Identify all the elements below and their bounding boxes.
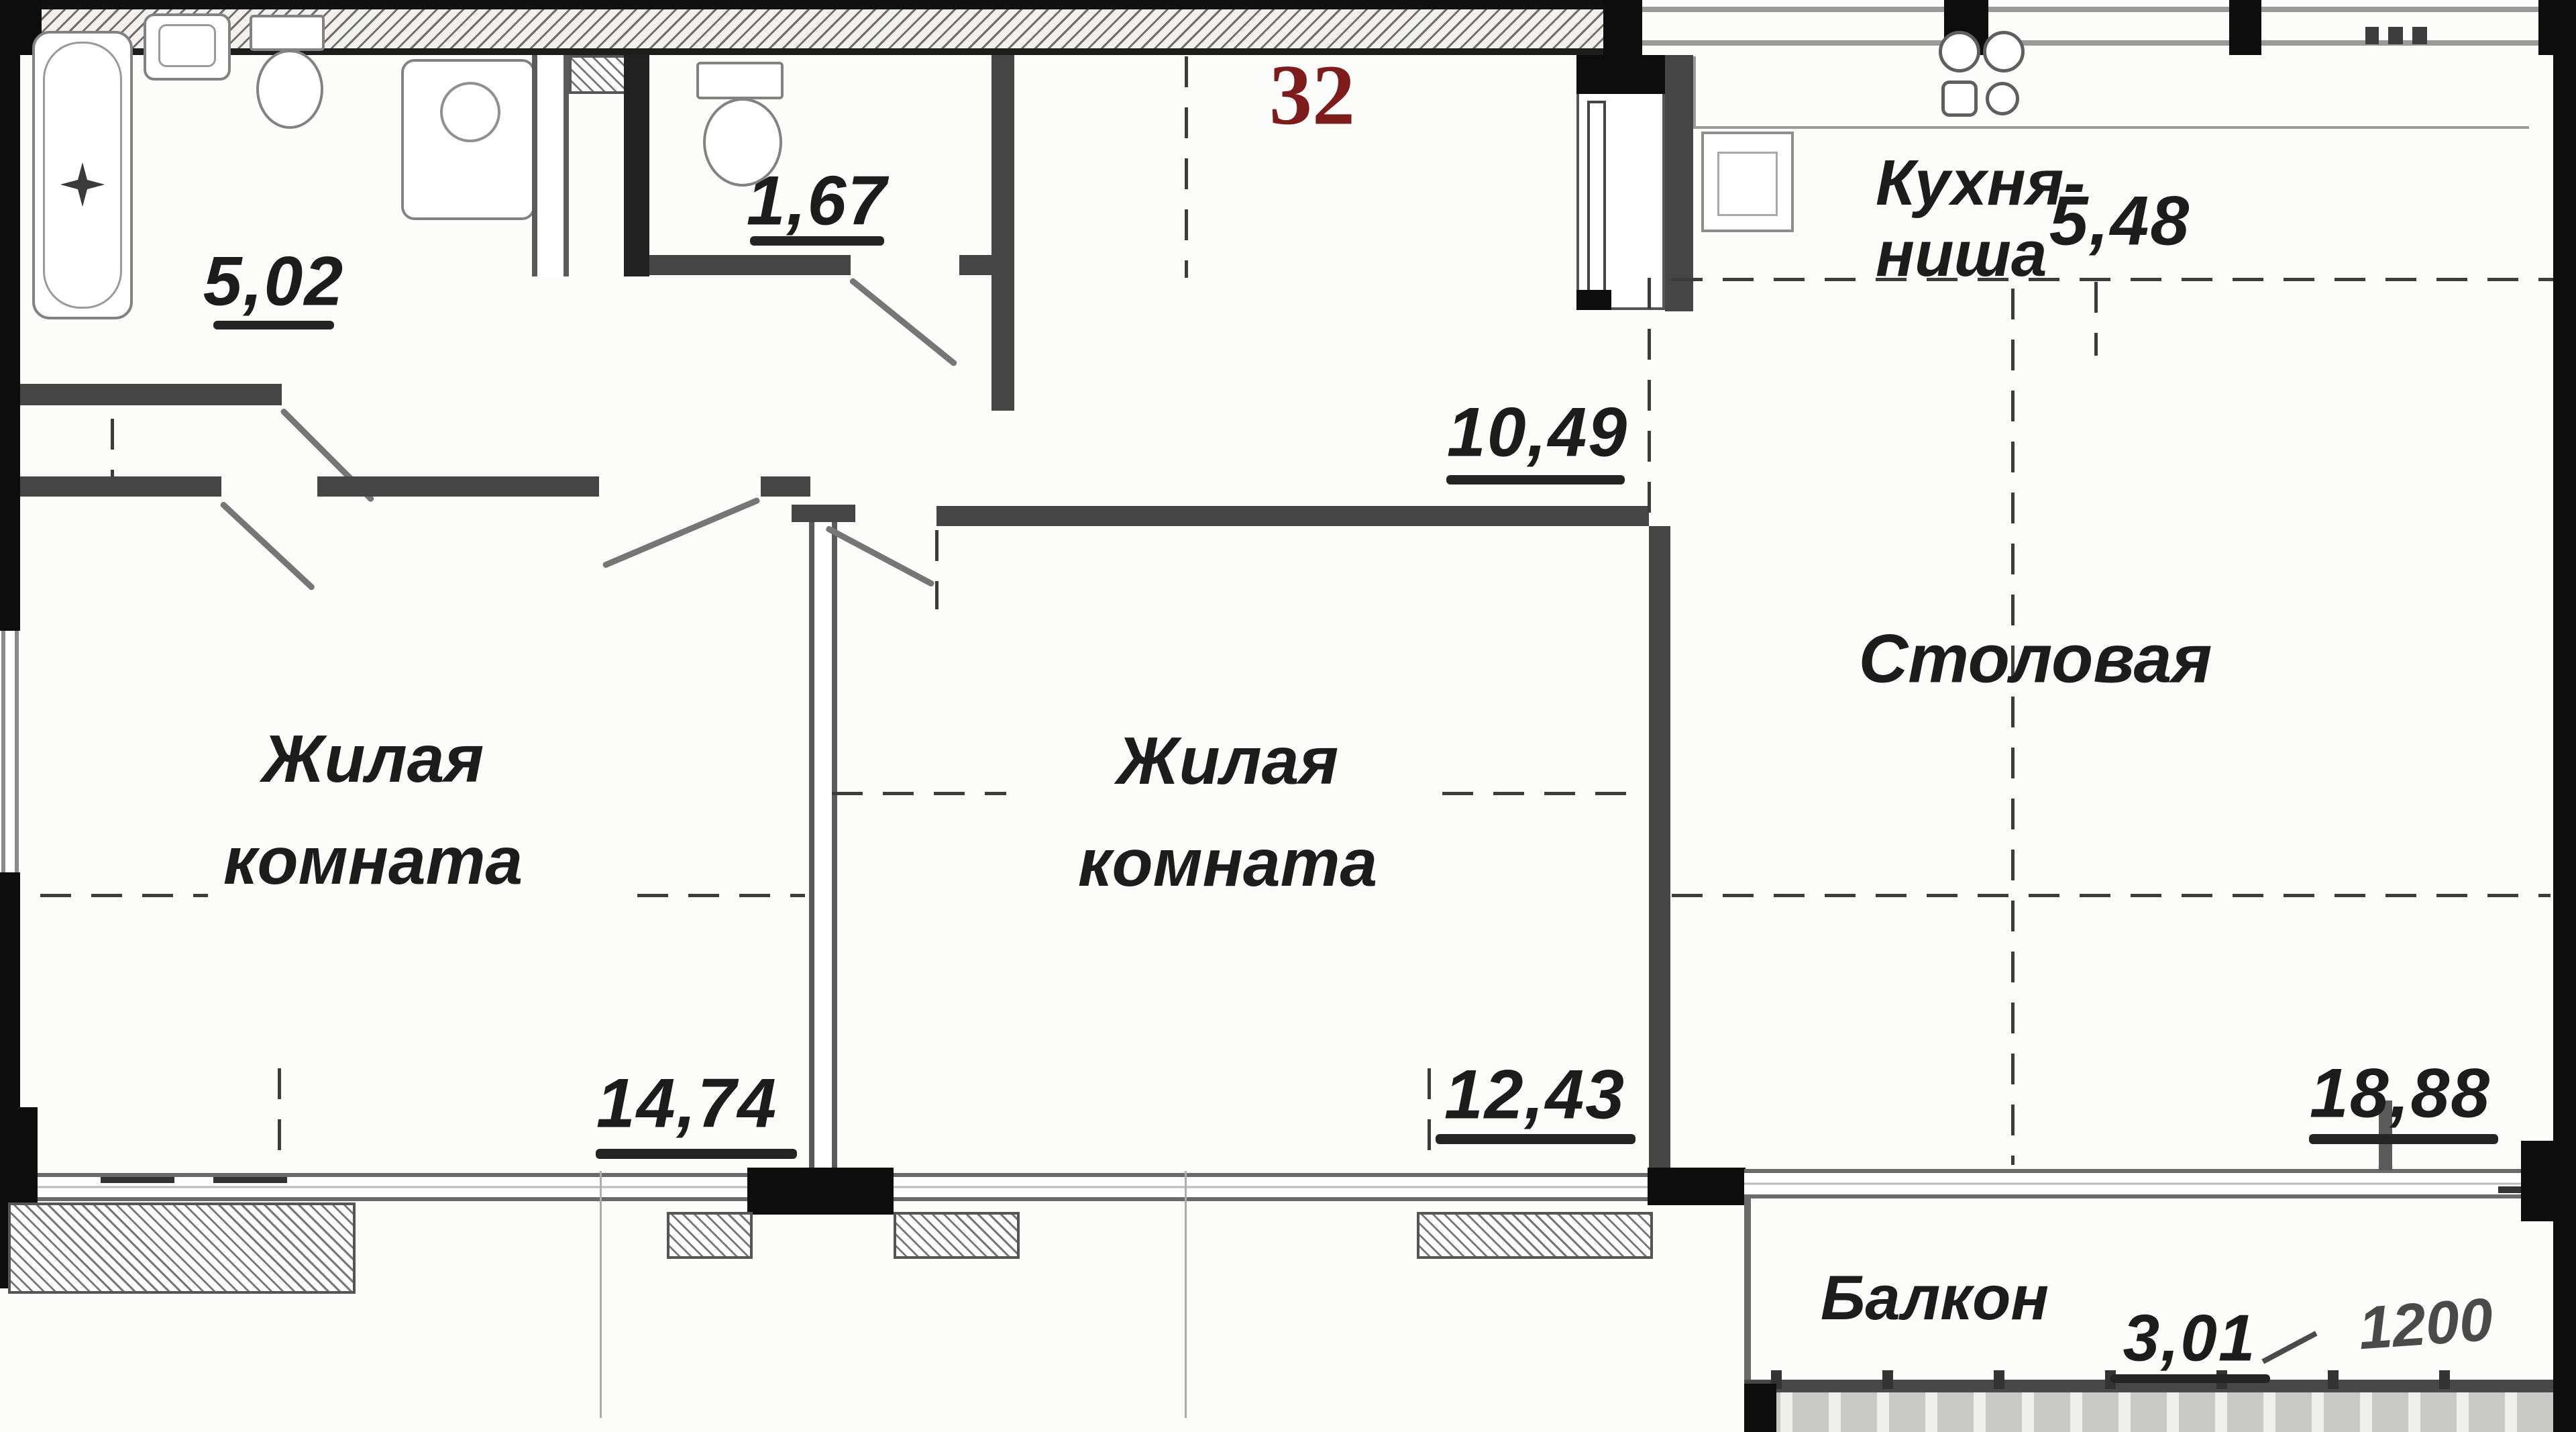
vent-shaft <box>569 55 627 94</box>
window-frame-mark <box>213 1177 287 1183</box>
stove-burners-icon <box>1935 16 2022 123</box>
living2-label-line2: комната <box>1078 812 1377 914</box>
vent-dots-icon <box>2365 25 2439 46</box>
top-wall-pier <box>1603 0 1642 55</box>
hall-zone-dash <box>1185 56 1188 278</box>
living1-top-wall <box>20 476 221 497</box>
toilet-bowl <box>256 50 323 129</box>
living2-zone-dash <box>1442 792 1644 795</box>
balcony-dim-slash <box>2261 1331 2317 1364</box>
living2-window-dash <box>1428 1068 1431 1169</box>
drain-star-icon <box>59 161 106 208</box>
bottom-pier <box>747 1168 894 1215</box>
toilet-icon <box>250 15 325 51</box>
shaft-wall <box>624 55 649 276</box>
balcony-corner-post <box>1744 1384 1776 1432</box>
apartment-number: 32 <box>1269 46 1355 145</box>
left-wall-upper <box>0 55 20 631</box>
dining-label: Столовая <box>1859 620 2212 699</box>
top-wall-pier <box>2229 0 2261 55</box>
balcony-left-wall <box>1744 1198 1751 1400</box>
door-zone-dash <box>935 530 938 609</box>
hall-area: 10,49 <box>1447 393 1628 473</box>
living2-right-wall <box>1649 526 1670 1169</box>
dining-zone-dash-h <box>1672 894 2551 897</box>
living2-top-wall <box>936 506 1649 526</box>
hall-dining-dash <box>1648 278 1651 525</box>
living2-area-underline <box>1436 1134 1635 1144</box>
window-sill-hatch <box>1417 1212 1653 1259</box>
wc-right-wall <box>991 55 1014 411</box>
sink-inner <box>158 24 216 67</box>
window-sill-hatch <box>8 1203 356 1294</box>
left-window <box>1 631 19 872</box>
kitchen-zone-dash-v <box>2094 282 2098 356</box>
counter-edge-left <box>1693 56 1696 129</box>
dining-zone-dash <box>2011 289 2015 1165</box>
living1-area-underline <box>596 1149 797 1159</box>
wc-door-jamb <box>959 255 991 275</box>
living2-label-line1: Жилая <box>1078 710 1377 812</box>
entrance-sill <box>1576 290 1611 310</box>
hall-area-underline <box>1446 475 1625 484</box>
window-sill-hatch <box>894 1212 1020 1259</box>
balcony-label: Балкон <box>1821 1262 2049 1334</box>
living2-door-leaf <box>825 525 935 588</box>
wc-door-leaf <box>849 277 958 367</box>
kitchen-area: 5,48 <box>2049 182 2190 262</box>
dining-area: 18,88 <box>2310 1054 2491 1134</box>
kitchen-zone-dash <box>1672 278 2553 281</box>
entrance-side-wall <box>1665 55 1693 311</box>
living-rooms-partition <box>809 522 837 1169</box>
window-sill-hatch <box>667 1212 753 1259</box>
living1-door-leaf <box>219 501 316 591</box>
window-frame-mark <box>101 1177 174 1183</box>
bathroom-area: 5,02 <box>203 242 344 322</box>
bathroom-area-underline <box>213 321 334 329</box>
living1-area: 14,74 <box>596 1064 777 1144</box>
balcony-rail-band <box>1744 1389 2553 1432</box>
entrance-door-leaf <box>1587 101 1606 301</box>
dining-window-strip <box>1744 1169 2553 1198</box>
balcony-corner-pier <box>2521 1141 2553 1221</box>
living1-zone-dash <box>637 894 805 897</box>
wc-toilet-tank <box>696 62 784 99</box>
living1-top-wall <box>761 476 810 497</box>
top-wall-hatched <box>0 0 1603 55</box>
entrance-header <box>1576 55 1665 94</box>
living1-window-dash <box>278 1068 281 1169</box>
floor-plan: 32 Кухня- ниша 5,48 1,67 5,02 10,49 Стол… <box>0 0 2576 1432</box>
extension-line <box>600 1171 602 1418</box>
dining-area-underline <box>2309 1134 2498 1144</box>
bathroom-right-wall <box>532 55 569 276</box>
wc-bottom-wall <box>649 255 851 275</box>
counter-edge <box>1693 126 2529 129</box>
living1-top-wall <box>317 476 599 497</box>
wc-area: 1,67 <box>747 162 888 242</box>
living1-label-line1: Жилая <box>223 708 523 810</box>
partition-cap <box>792 505 855 522</box>
bathroom-bottom-wall <box>20 384 282 405</box>
living2-label: Жилая комната <box>1078 710 1377 914</box>
washing-machine-door <box>440 82 500 142</box>
bottom-pier-right <box>1648 1168 1746 1205</box>
living1-label-line2: комната <box>223 810 523 912</box>
balcony-door-mark <box>2498 1186 2521 1193</box>
top-window-line <box>1603 7 2557 12</box>
balcony-area-underline <box>2110 1374 2270 1383</box>
right-wall <box>2553 0 2576 1432</box>
living1-label: Жилая комната <box>223 708 523 912</box>
living1-door-leaf-2 <box>602 497 760 568</box>
extension-line <box>1185 1171 1187 1418</box>
living1-zone-dash <box>40 894 208 897</box>
balcony-area: 3,01 <box>2123 1300 2257 1376</box>
kitchen-sink-inner <box>1717 152 1778 216</box>
hall-left-dash <box>111 419 114 476</box>
balcony-dimension: 1200 <box>2357 1286 2495 1364</box>
living2-zone-dash <box>832 792 1006 795</box>
wc-area-underline <box>750 236 884 246</box>
living2-area: 12,43 <box>1444 1056 1625 1135</box>
